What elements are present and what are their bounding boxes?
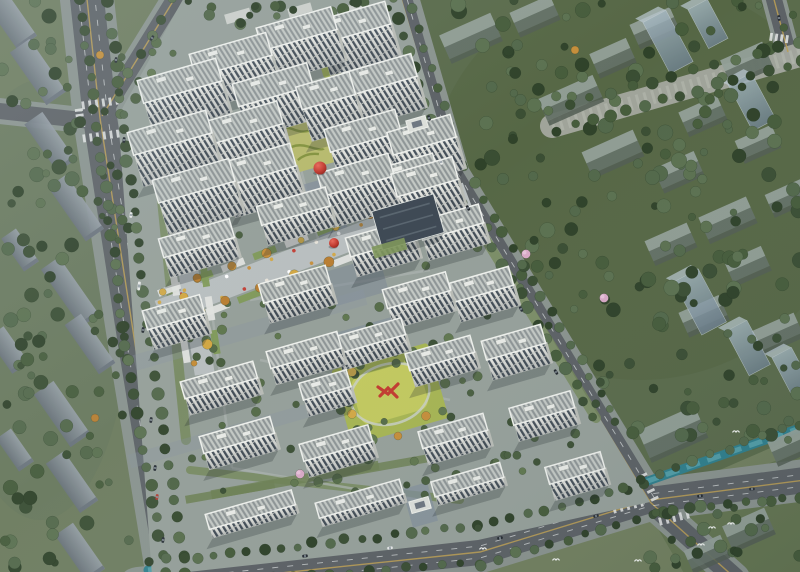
aerial-render-image (0, 0, 800, 572)
masterplan-scene (0, 0, 800, 572)
atmosphere-layer (0, 0, 800, 572)
